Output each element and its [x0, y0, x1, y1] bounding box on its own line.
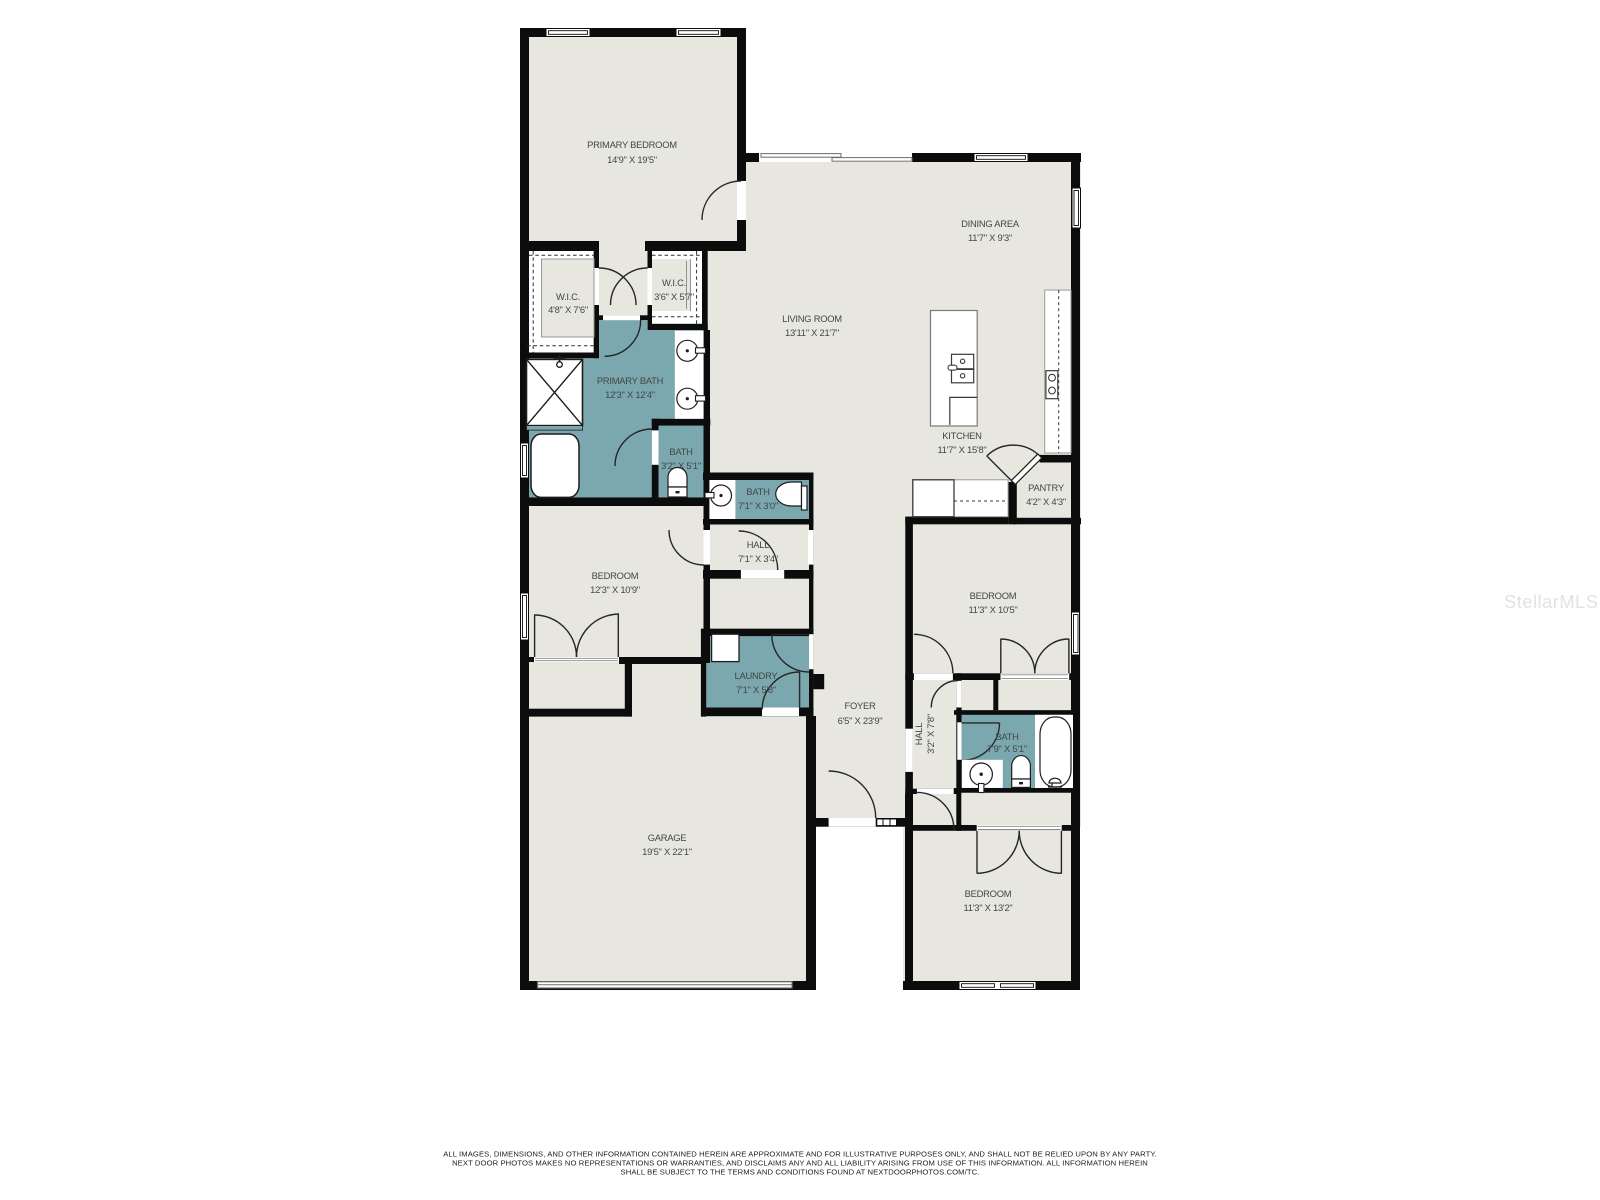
svg-text:7'1" X 3'0": 7'1" X 3'0"	[738, 500, 778, 511]
svg-text:6'5" X 23'9": 6'5" X 23'9"	[838, 715, 883, 726]
svg-text:LIVING ROOM: LIVING ROOM	[782, 313, 842, 324]
svg-text:11'3" X 13'2": 11'3" X 13'2"	[963, 902, 1012, 913]
svg-text:12'3" X 10'9": 12'3" X 10'9"	[590, 584, 640, 595]
svg-text:11'7" X 9'3": 11'7" X 9'3"	[968, 232, 1012, 243]
svg-text:LAUNDRY: LAUNDRY	[735, 670, 779, 681]
svg-text:7'9" X 5'1": 7'9" X 5'1"	[987, 743, 1027, 754]
svg-text:PRIMARY BEDROOM: PRIMARY BEDROOM	[587, 139, 677, 150]
svg-text:3'2" X 7'8": 3'2" X 7'8"	[925, 714, 936, 754]
svg-text:7'1" X 3'4": 7'1" X 3'4"	[738, 553, 778, 564]
svg-text:NEXT DOOR PHOTOS MAKES NO REPR: NEXT DOOR PHOTOS MAKES NO REPRESENTATION…	[452, 1159, 1148, 1168]
svg-text:GARAGE: GARAGE	[648, 832, 687, 843]
svg-text:11'7" X 15'8": 11'7" X 15'8"	[937, 444, 986, 455]
svg-text:BATH: BATH	[995, 731, 1018, 742]
svg-text:4'2" X 4'3": 4'2" X 4'3"	[1026, 496, 1066, 507]
svg-text:BATH: BATH	[746, 486, 769, 497]
svg-text:14'9" X 19'5": 14'9" X 19'5"	[607, 154, 657, 165]
svg-text:19'5" X 22'1": 19'5" X 22'1"	[642, 846, 692, 857]
svg-text:4'8" X 7'6": 4'8" X 7'6"	[548, 304, 588, 315]
svg-text:DINING AREA: DINING AREA	[961, 218, 1020, 229]
svg-text:BATH: BATH	[669, 446, 692, 457]
svg-text:HALL: HALL	[913, 723, 924, 745]
svg-text:BEDROOM: BEDROOM	[970, 590, 1017, 601]
svg-text:BEDROOM: BEDROOM	[592, 570, 639, 581]
svg-text:13'11" X 21'7": 13'11" X 21'7"	[785, 327, 839, 338]
svg-text:W.I.C.: W.I.C.	[662, 277, 686, 288]
svg-text:KITCHEN: KITCHEN	[942, 430, 981, 441]
svg-text:SHALL BE SUBJECT TO THE TERMS: SHALL BE SUBJECT TO THE TERMS AND CONDIT…	[621, 1168, 980, 1177]
svg-text:StellarMLS: StellarMLS	[1504, 591, 1598, 612]
svg-text:3'6" X 5'7": 3'6" X 5'7"	[654, 291, 694, 302]
svg-text:BEDROOM: BEDROOM	[965, 888, 1012, 899]
svg-text:W.I.C.: W.I.C.	[556, 291, 580, 302]
svg-text:7'1" X 5'8": 7'1" X 5'8"	[736, 684, 776, 695]
svg-text:12'3" X 12'4": 12'3" X 12'4"	[605, 389, 655, 400]
svg-text:PRIMARY BATH: PRIMARY BATH	[597, 375, 663, 386]
svg-text:ALL IMAGES, DIMENSIONS, AND OT: ALL IMAGES, DIMENSIONS, AND OTHER INFORM…	[443, 1150, 1157, 1159]
svg-text:HALL: HALL	[747, 539, 769, 550]
svg-text:11'3" X 10'5": 11'3" X 10'5"	[968, 604, 1017, 615]
svg-text:FOYER: FOYER	[844, 700, 876, 711]
svg-text:PANTRY: PANTRY	[1028, 482, 1065, 493]
